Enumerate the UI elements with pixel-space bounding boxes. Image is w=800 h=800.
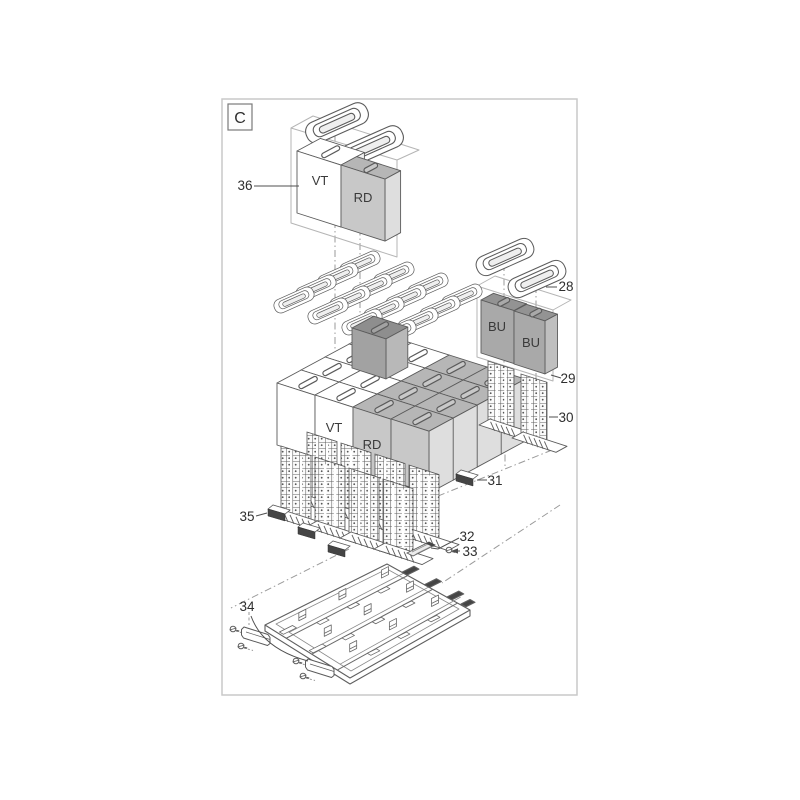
foam-label-bu-left: BU [488, 319, 506, 334]
foam-label-top-rd: RD [354, 190, 373, 205]
callout-35: 35 [239, 509, 254, 524]
callout-32: 32 [459, 529, 474, 544]
callout-29: 29 [560, 371, 575, 386]
page: C 36 28 29 30 31 32 33 34 35 VT RD VT RD… [0, 0, 800, 800]
foam-block-dark-raised [352, 316, 408, 379]
callout-34: 34 [239, 599, 255, 614]
callout-30: 30 [558, 410, 573, 425]
foam-label-cluster-vt: VT [326, 420, 343, 435]
callout-31: 31 [487, 473, 502, 488]
foam-label-top-vt: VT [312, 173, 329, 188]
exploded-parts-diagram: C 36 28 29 30 31 32 33 34 35 VT RD VT RD… [0, 0, 800, 800]
callout-33: 33 [462, 544, 477, 559]
callout-36: 36 [237, 178, 252, 193]
callout-28: 28 [558, 279, 573, 294]
section-label: C [234, 110, 246, 127]
foam-label-cluster-rd: RD [363, 437, 382, 452]
foam-label-bu-right: BU [522, 335, 540, 350]
